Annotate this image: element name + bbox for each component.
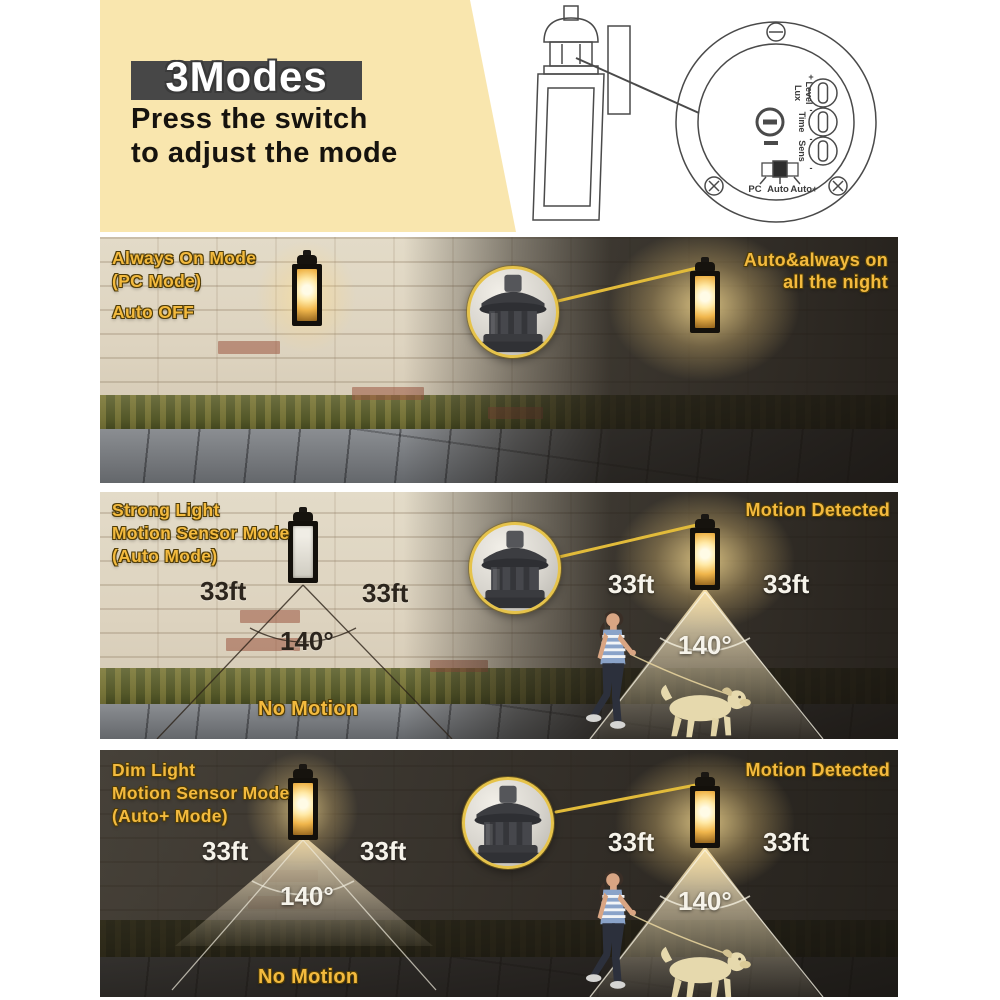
no-motion-label: No Motion [258,966,358,989]
pir-sensor-cap [695,519,715,528]
sensor-photo [470,269,556,355]
time-label: Time [797,112,807,133]
sensor-closeup [462,777,554,869]
angle-label-day: 140° [280,626,334,657]
pir-sensor-cap [695,777,715,786]
panel-auto-plus-mode: Dim Light Motion Sensor Mode (Auto+ Mode… [100,750,898,997]
wall-lantern-night-on [690,772,720,848]
pir-sensor-cap [695,262,715,271]
angle-label: 140° [280,881,334,912]
brick-accent [218,341,280,354]
range-label-left: 33ft [202,836,248,867]
night-caption-line2: all the night [744,271,888,293]
sens-label: Sens [797,140,807,162]
pir-sensor-cap [293,512,313,521]
brick-accent [352,387,424,400]
range-label-night-left: 33ft [608,569,654,600]
lux-label-line1: Lux [793,85,803,101]
mode-title-line1: Strong Light [112,499,289,522]
brick-accent [240,610,300,623]
brick-accent [430,660,488,672]
dog [656,944,754,997]
range-label-day-left: 33ft [200,576,246,607]
wall-lantern-dim-on [288,764,318,840]
lux-plus: + [808,72,813,82]
sensor-closeup [467,266,559,358]
pavement [100,957,898,997]
wall-lantern-day-off [288,507,318,583]
angle-label-night: 140° [678,886,732,917]
modes-badge: 3Modes [131,61,362,100]
pavement [100,429,898,483]
mode-title-line3: (Auto Mode) [112,545,289,568]
switch-auto-label: Auto [767,184,789,195]
night-caption-line1: Auto&always on [744,249,888,271]
wall-lantern-night-on [690,514,720,590]
pir-sensor-cap [293,769,313,778]
range-label-night-right: 33ft [763,569,809,600]
range-label-right: 33ft [360,836,406,867]
sensor-photo [472,525,558,611]
lux-minus: - [810,105,813,115]
callout-line [576,58,699,113]
modes-badge-label: 3Modes [165,53,327,101]
range-label-night-left: 33ft [608,827,654,858]
mode-title-line3: (Auto+ Mode) [112,805,289,828]
panel-always-on-mode: Always On Mode (PC Mode) Auto OFF Auto&a… [100,237,898,483]
grass-strip [100,668,898,704]
switch-pc-label: PC [748,184,761,195]
lux-label-line2: Level [804,81,814,104]
woman-walking [586,864,636,997]
brick-accent [488,407,543,419]
mode-title-line2: Motion Sensor Mode [112,782,289,805]
product-infographic: 3Modes Press the switch to adjust the mo… [0,0,1000,1000]
grass-strip [100,920,898,957]
panel-auto-mode: Strong Light Motion Sensor Mode (Auto Mo… [100,492,898,739]
sensor-photo [465,780,551,866]
wall-lantern-night-on [690,257,720,333]
sensor-dial-diagram: Lux Level Time Sens + - - - PC Auto Auto… [500,0,900,235]
wall-lantern-day-on [292,250,322,326]
mode-slider-knob [773,161,787,177]
mode-title-line2: Motion Sensor Mode [112,522,289,545]
angle-label-night: 140° [678,630,732,661]
no-motion-label: No Motion [258,698,358,721]
woman-walking [586,604,636,738]
subtitle-line1: Press the switch [131,102,398,136]
pir-sensor-cap [297,255,317,264]
motion-detected-label: Motion Detected [745,759,890,781]
time-minus: - [810,134,813,144]
mode-title-line2: (PC Mode) [112,270,256,293]
lamp-sensor-dome-sketch [544,18,598,42]
motion-detected-label: Motion Detected [745,499,890,521]
sensor-closeup [469,522,561,614]
header-subtitle: Press the switch to adjust the mode [131,102,398,170]
switch-autoplus-label: Auto+ [790,184,818,195]
auto-off-status: Auto OFF [112,301,194,324]
mode-title: Dim Light Motion Sensor Mode (Auto+ Mode… [112,759,289,828]
range-label-night-right: 33ft [763,827,809,858]
mode-title: Always On Mode (PC Mode) [112,247,256,293]
dog [656,682,754,739]
mode-title: Strong Light Motion Sensor Mode (Auto Mo… [112,499,289,568]
wall-plate-sketch [608,26,630,114]
mode-title-line1: Always On Mode [112,247,256,270]
range-label-day-right: 33ft [362,578,408,609]
mode-title-line1: Dim Light [112,759,289,782]
sens-minus: - [810,163,813,173]
pavement [100,704,898,739]
night-caption: Auto&always on all the night [744,249,888,293]
subtitle-line2: to adjust the mode [131,136,398,170]
